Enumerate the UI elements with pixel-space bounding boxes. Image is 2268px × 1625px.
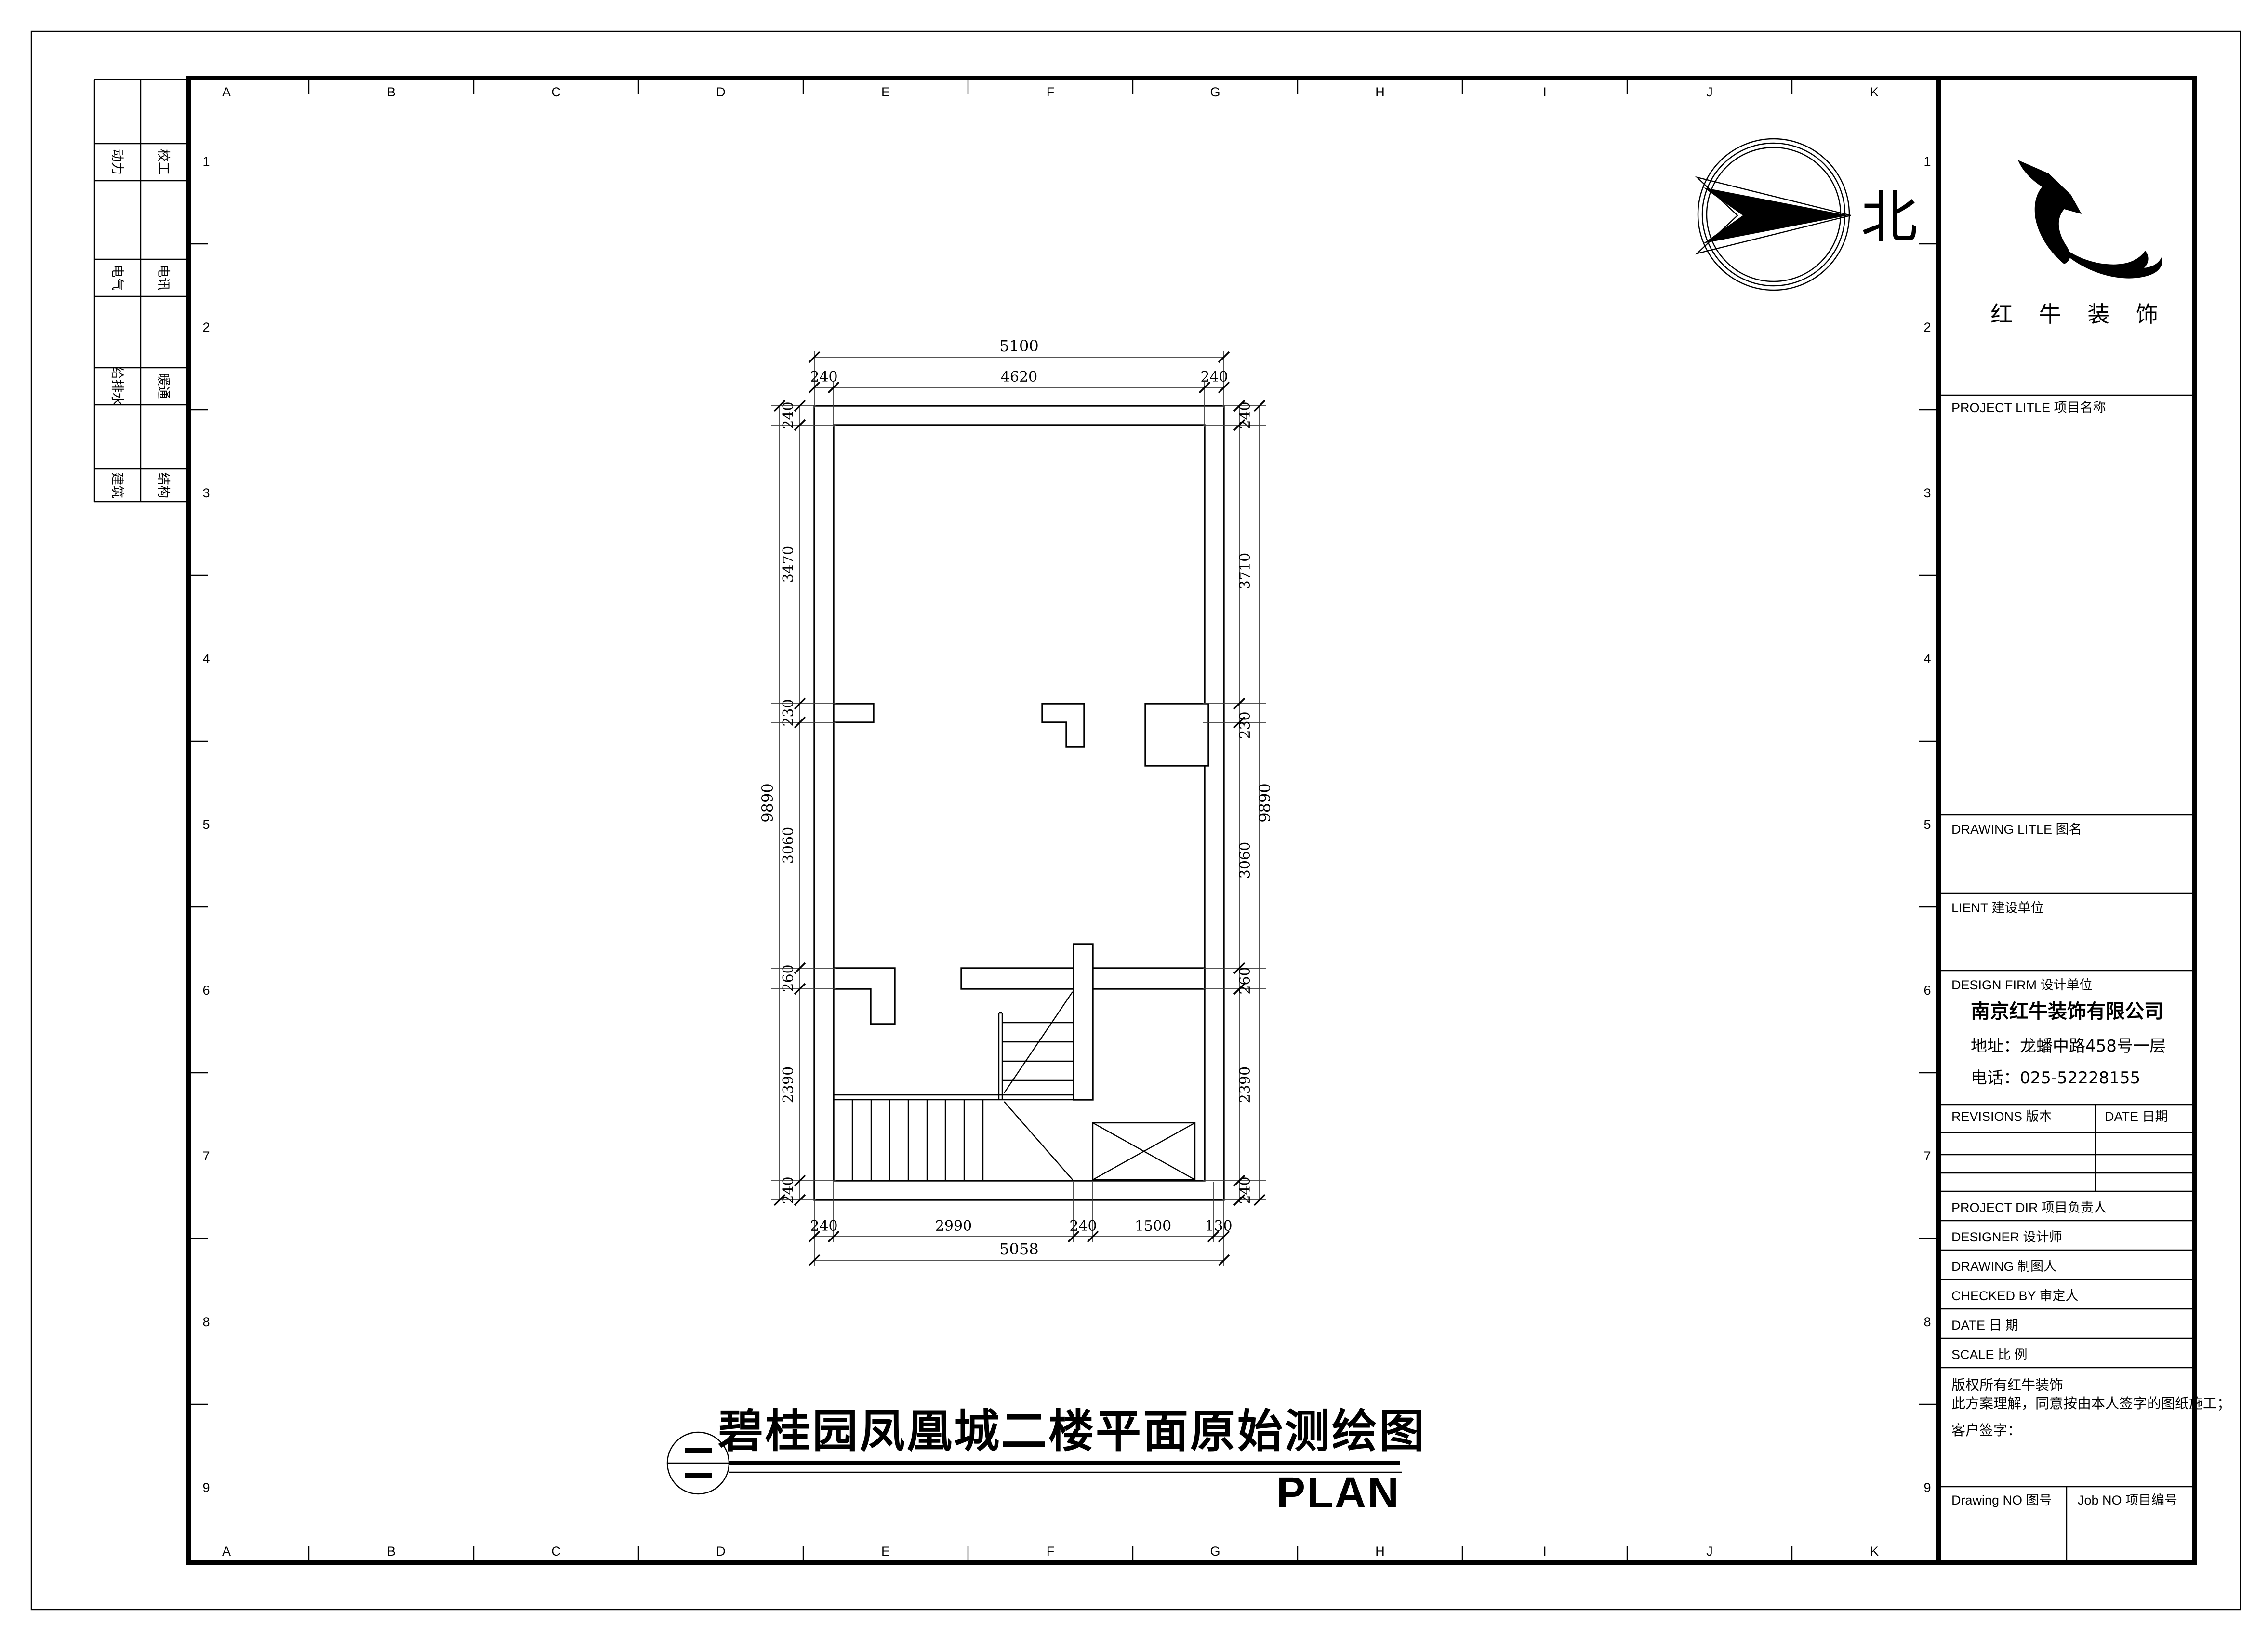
main-frame (189, 78, 2194, 1562)
date-header-label: DATE 日期 (2105, 1109, 2168, 1124)
stairwell-wall (1074, 944, 1093, 1100)
grid-row-label: 2 (202, 320, 210, 334)
discipline-cell: 结构 (156, 472, 171, 498)
grid-row-label: 4 (202, 652, 210, 666)
discipline-cell: 建筑 (109, 472, 124, 498)
dim-bottom: 2990 (935, 1218, 972, 1235)
discipline-cell: 暖通 (156, 373, 171, 399)
design-firm-label: DESIGN FIRM 设计单位 (1951, 978, 2093, 992)
left-pilaster (834, 704, 874, 722)
client-label: LIENT 建设单位 (1951, 901, 2044, 915)
copyright-line2: 此方案理解，同意按由本人签字的图纸施工； (1951, 1395, 2231, 1412)
stair-break-lines (1004, 992, 1073, 1180)
grid-col-label: B (387, 85, 396, 99)
title-underline-thick (729, 1461, 1400, 1465)
grid-row-label: 6 (202, 983, 210, 998)
left-partition-wall (834, 968, 895, 1024)
north-arrow: 北 (1697, 139, 1918, 290)
logo-text: 红 牛 装 饰 (1990, 301, 2168, 327)
dim-left-overall: 9890 (758, 783, 777, 822)
dim-left: 3060 (780, 827, 797, 864)
grid-row-label: 8 (202, 1315, 210, 1329)
date-label: DATE 日 期 (1951, 1318, 2018, 1332)
grid-ticks (189, 78, 1938, 1562)
grid-row-label: 5 (202, 817, 210, 832)
stair-newel-line (999, 1013, 1002, 1100)
grid-row-label: 6 (1923, 983, 1931, 998)
dim-left: 3470 (780, 546, 797, 583)
grid-col-label: J (1706, 1544, 1713, 1558)
dim-left: 230 (780, 699, 797, 726)
title-bubble-top-mark (685, 1448, 712, 1453)
project-title-label: PROJECT LITLE 项目名称 (1951, 400, 2106, 415)
copyright-line1: 版权所有红牛装饰 (1951, 1377, 2063, 1393)
grid-col-label: I (1543, 85, 1547, 99)
north-arrow-pointer (1703, 187, 1848, 243)
grid-col-label: I (1543, 1544, 1547, 1558)
discipline-cell: 校工 (156, 149, 171, 175)
grid-row-label: 1 (1923, 154, 1931, 169)
grid-col-label: A (222, 1544, 231, 1558)
grid-row-label: 5 (1923, 817, 1931, 832)
right-column (1145, 704, 1208, 766)
dim-top: 240 (810, 369, 837, 386)
dim-left: 2390 (780, 1066, 797, 1103)
discipline-table: 动力 校工 电气 电讯 给排水 暖通 建筑 结构 (94, 80, 187, 502)
grid-row-label: 3 (1923, 486, 1931, 500)
drawing-by-label: DRAWING 制图人 (1951, 1259, 2056, 1274)
drawing-title-label: DRAWING LITLE 图名 (1951, 822, 2082, 837)
dim-left: 260 (780, 964, 797, 992)
logo-wing (2018, 160, 2082, 264)
project-dir-label: PROJECT DIR 项目负责人 (1951, 1200, 2107, 1215)
stair-treads (852, 1100, 983, 1181)
job-no-label: Job NO 项目编号 (2078, 1493, 2177, 1507)
dim-top-overall: 5100 (999, 337, 1038, 355)
plan-label: PLAN (1276, 1469, 1400, 1517)
grid-col-label: H (1375, 85, 1385, 99)
drawing-title-block: 碧桂园凤凰城二楼平面原始测绘图 PLAN (667, 1405, 1426, 1517)
grid-row-label: 9 (202, 1480, 210, 1495)
grid-row-label: 1 (202, 154, 210, 169)
grid-col-label: H (1375, 1544, 1385, 1558)
grid-col-label: C (551, 85, 561, 99)
company-address: 地址：龙蟠中路458号一层 (1971, 1037, 2166, 1056)
drawing-sheet: 动力 校工 电气 电讯 给排水 暖通 建筑 结构 A B C D E F G H… (0, 0, 2268, 1625)
floor-plan: 9890 240 3470 230 3060 260 2390 240 9890… (758, 337, 1274, 1266)
dimension-lines (771, 351, 1266, 1266)
grid-row-label: 7 (1923, 1149, 1931, 1163)
company-phone: 电话：025-52228155 (1971, 1068, 2140, 1088)
north-label: 北 (1861, 184, 1918, 251)
dim-bottom-overall: 5058 (999, 1240, 1038, 1258)
grid-row-label: 2 (1923, 320, 1931, 334)
dim-bottom: 240 (810, 1218, 837, 1235)
grid-col-label: D (716, 1544, 726, 1558)
grid-col-label: F (1047, 1544, 1055, 1558)
scale-label: SCALE 比 例 (1951, 1347, 2028, 1362)
dim-right: 2390 (1237, 1066, 1254, 1103)
dim-right: 260 (1237, 967, 1254, 994)
client-sign-label: 客户签字： (1951, 1422, 2021, 1439)
discipline-cell: 动力 (109, 149, 124, 175)
dim-bottom: 1500 (1135, 1218, 1171, 1235)
dimension-main-lines (780, 357, 1260, 1260)
dim-right: 230 (1237, 711, 1254, 739)
discipline-cell: 电讯 (156, 265, 171, 291)
dim-bottom: 130 (1205, 1218, 1232, 1235)
grid-col-label: G (1210, 85, 1220, 99)
grid-col-label: K (1870, 1544, 1879, 1558)
outer-border (31, 31, 2241, 1610)
drawing-no-label: Drawing NO 图号 (1951, 1493, 2052, 1507)
checked-by-label: CHECKED BY 审定人 (1951, 1289, 2079, 1303)
shaft-cross (1093, 1123, 1195, 1180)
dim-right: 240 (1237, 401, 1254, 429)
dim-left: 240 (780, 401, 797, 429)
revisions-label: REVISIONS 版本 (1951, 1109, 2052, 1124)
stair-winders (1002, 1023, 1074, 1080)
designer-label: DESIGNER 设计师 (1951, 1230, 2062, 1244)
discipline-cell: 给排水 (109, 367, 124, 406)
dimension-extension-lines (771, 351, 1266, 1266)
grid-col-label: G (1210, 1544, 1220, 1558)
dim-right: 3060 (1237, 842, 1254, 879)
dim-top: 4620 (1001, 369, 1037, 386)
company-name: 南京红牛装饰有限公司 (1971, 1000, 2163, 1023)
drawing-title: 碧桂园凤凰城二楼平面原始测绘图 (718, 1405, 1426, 1458)
company-logo: 红 牛 装 饰 (1990, 160, 2168, 327)
grid-col-label: J (1706, 85, 1713, 99)
dim-right-overall: 9890 (1256, 783, 1274, 822)
grid-col-label: E (881, 85, 890, 99)
stair-landing-edge (834, 1095, 1074, 1100)
dim-right: 240 (1237, 1176, 1254, 1204)
grid-row-label: 9 (1923, 1480, 1931, 1495)
grid-labels: A B C D E F G H I J K A B C D E F G H I … (189, 78, 1938, 1562)
grid-row-label: 8 (1923, 1315, 1931, 1329)
titleblock: 红 牛 装 饰 PROJECT LITLE 项目名称 DRAWING LITLE… (1938, 160, 2231, 1562)
grid-row-label: 7 (202, 1149, 210, 1163)
dim-left: 240 (780, 1176, 797, 1204)
grid-col-label: B (387, 1544, 396, 1558)
dim-top: 240 (1200, 369, 1228, 386)
dim-right: 3710 (1237, 553, 1254, 589)
center-column (1042, 704, 1084, 747)
grid-col-label: F (1047, 85, 1055, 99)
stairs (834, 992, 1074, 1181)
discipline-cell: 电气 (109, 265, 124, 291)
grid-col-label: K (1870, 85, 1879, 99)
grid-col-label: E (881, 1544, 890, 1558)
dimension-ticks (774, 352, 1265, 1265)
grid-col-label: C (551, 1544, 561, 1558)
grid-row-label: 3 (202, 486, 210, 500)
dimension-labels: 9890 240 3470 230 3060 260 2390 240 9890… (758, 337, 1274, 1258)
grid-row-label: 4 (1923, 652, 1931, 666)
dim-bottom: 240 (1069, 1218, 1097, 1235)
inner-wall (834, 425, 1205, 1181)
grid-col-label: D (716, 85, 726, 99)
grid-col-label: A (222, 85, 231, 99)
title-bubble-bottom-mark (685, 1473, 712, 1478)
shaft-box (1093, 1123, 1195, 1180)
discipline-table-grid (94, 80, 187, 502)
